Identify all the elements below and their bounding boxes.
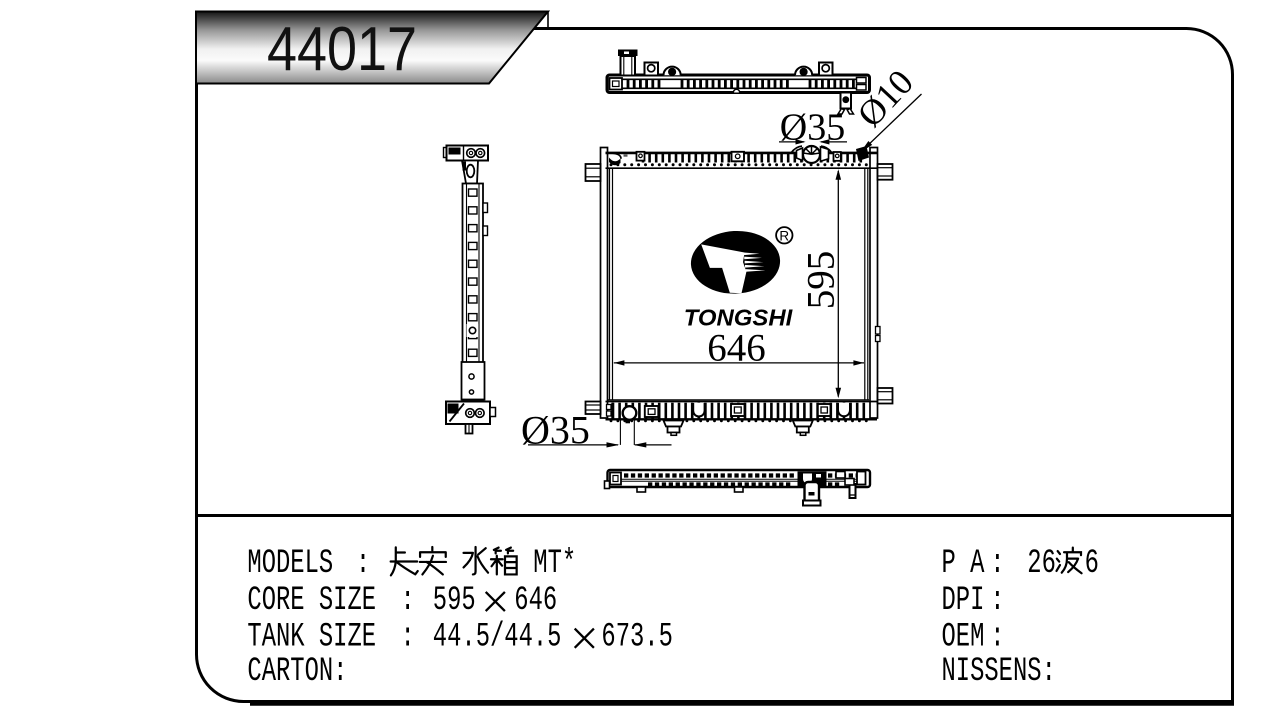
svg-text:44017: 44017 (267, 15, 417, 84)
svg-text:595: 595 (800, 251, 843, 310)
svg-text:Ø35: Ø35 (521, 408, 590, 453)
svg-text:595: 595 (433, 580, 476, 620)
svg-text:CARTON:: CARTON: (247, 651, 347, 691)
svg-text:CORE SIZE: CORE SIZE (247, 580, 376, 620)
svg-text:NISSENS:: NISSENS: (942, 651, 1056, 691)
svg-text:673.5: 673.5 (601, 616, 672, 656)
svg-text::: : (990, 580, 1004, 620)
svg-text::: : (401, 580, 415, 620)
svg-text:26: 26 (1027, 543, 1056, 583)
svg-text:646: 646 (514, 580, 557, 620)
svg-text::: : (990, 543, 1004, 583)
svg-text:44.5/44.5: 44.5/44.5 (433, 616, 562, 656)
svg-text:TONGSHI: TONGSHI (684, 304, 793, 330)
svg-text:MT*: MT* (533, 543, 576, 583)
svg-text::: : (356, 543, 370, 583)
svg-text::: : (401, 616, 415, 656)
svg-text:MODELS: MODELS (247, 543, 333, 583)
svg-text:P A: P A (942, 543, 985, 583)
svg-text:6: 6 (1085, 543, 1099, 583)
svg-text:R: R (779, 229, 789, 244)
svg-text:DPI: DPI (942, 580, 985, 620)
